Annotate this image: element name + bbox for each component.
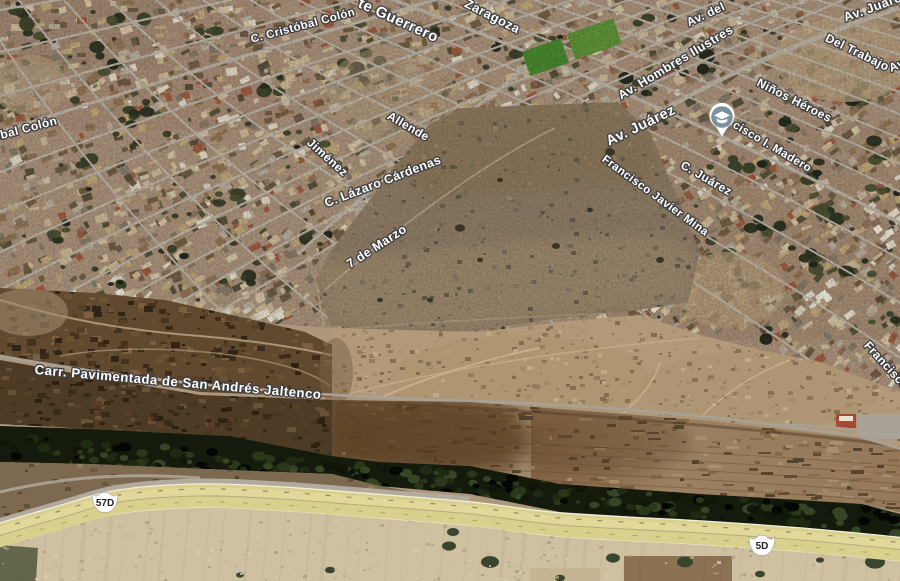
svg-text:5D: 5D xyxy=(756,541,769,552)
svg-text:57D: 57D xyxy=(96,498,114,509)
